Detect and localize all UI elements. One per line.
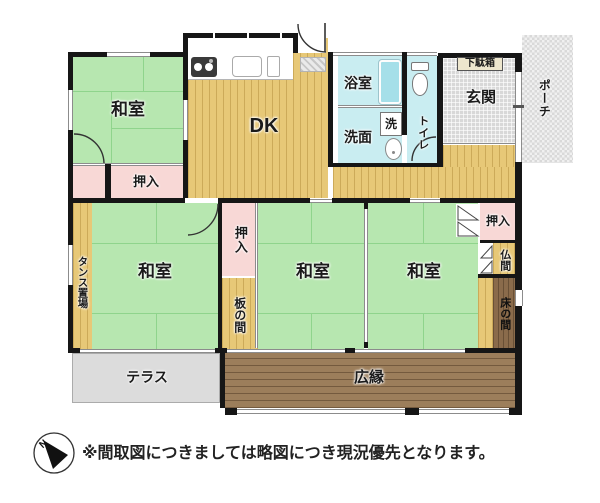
disclaimer-text: ※間取図につきましては略図につき現況優先となります。: [82, 439, 495, 463]
fold-door-butsuma: [481, 246, 492, 258]
label-washitsu-c: 和室: [273, 262, 353, 282]
label-laundry: 洗: [380, 112, 402, 136]
label-dk: DK: [234, 113, 294, 139]
label-shoe-cabinet: 下駄箱: [457, 57, 503, 71]
label-washitsu-nw: 和室: [88, 100, 168, 120]
label-washroom: 洗面: [333, 128, 383, 146]
bifold-door-closet-ne: [458, 206, 478, 220]
door-arc-washitsu-w: [188, 204, 218, 235]
label-itanoma: 板の間: [231, 286, 248, 344]
label-closet-nw: 押入: [116, 173, 176, 190]
label-tokonoma: 床の間: [496, 287, 512, 339]
label-porch: ポーチ: [535, 65, 553, 131]
label-washitsu-w: 和室: [115, 262, 195, 282]
label-closet-ne: 押入: [481, 213, 515, 229]
label-hiroen: 広縁: [329, 369, 409, 387]
label-washitsu-e: 和室: [384, 262, 464, 282]
compass-icon: N: [31, 430, 77, 476]
label-toilet: トイレ: [414, 106, 430, 160]
label-terrace: テラス: [107, 368, 187, 386]
label-butsuma: 仏間: [496, 245, 512, 275]
door-arc-dk: [298, 24, 326, 52]
label-tansu-space: タンス置場: [74, 238, 90, 326]
label-entrance: 玄関: [451, 89, 511, 107]
label-closet-center: 押入: [232, 214, 248, 266]
door-arc-washitsu-nw: [74, 134, 104, 163]
fold-door-butsuma: [481, 261, 492, 273]
bifold-door-closet-ne: [458, 222, 478, 236]
floor-plan-screenshot: { "rooms": { "washitsu_nw": {"label": "和…: [0, 0, 600, 503]
label-bathroom: 浴室: [333, 74, 383, 92]
